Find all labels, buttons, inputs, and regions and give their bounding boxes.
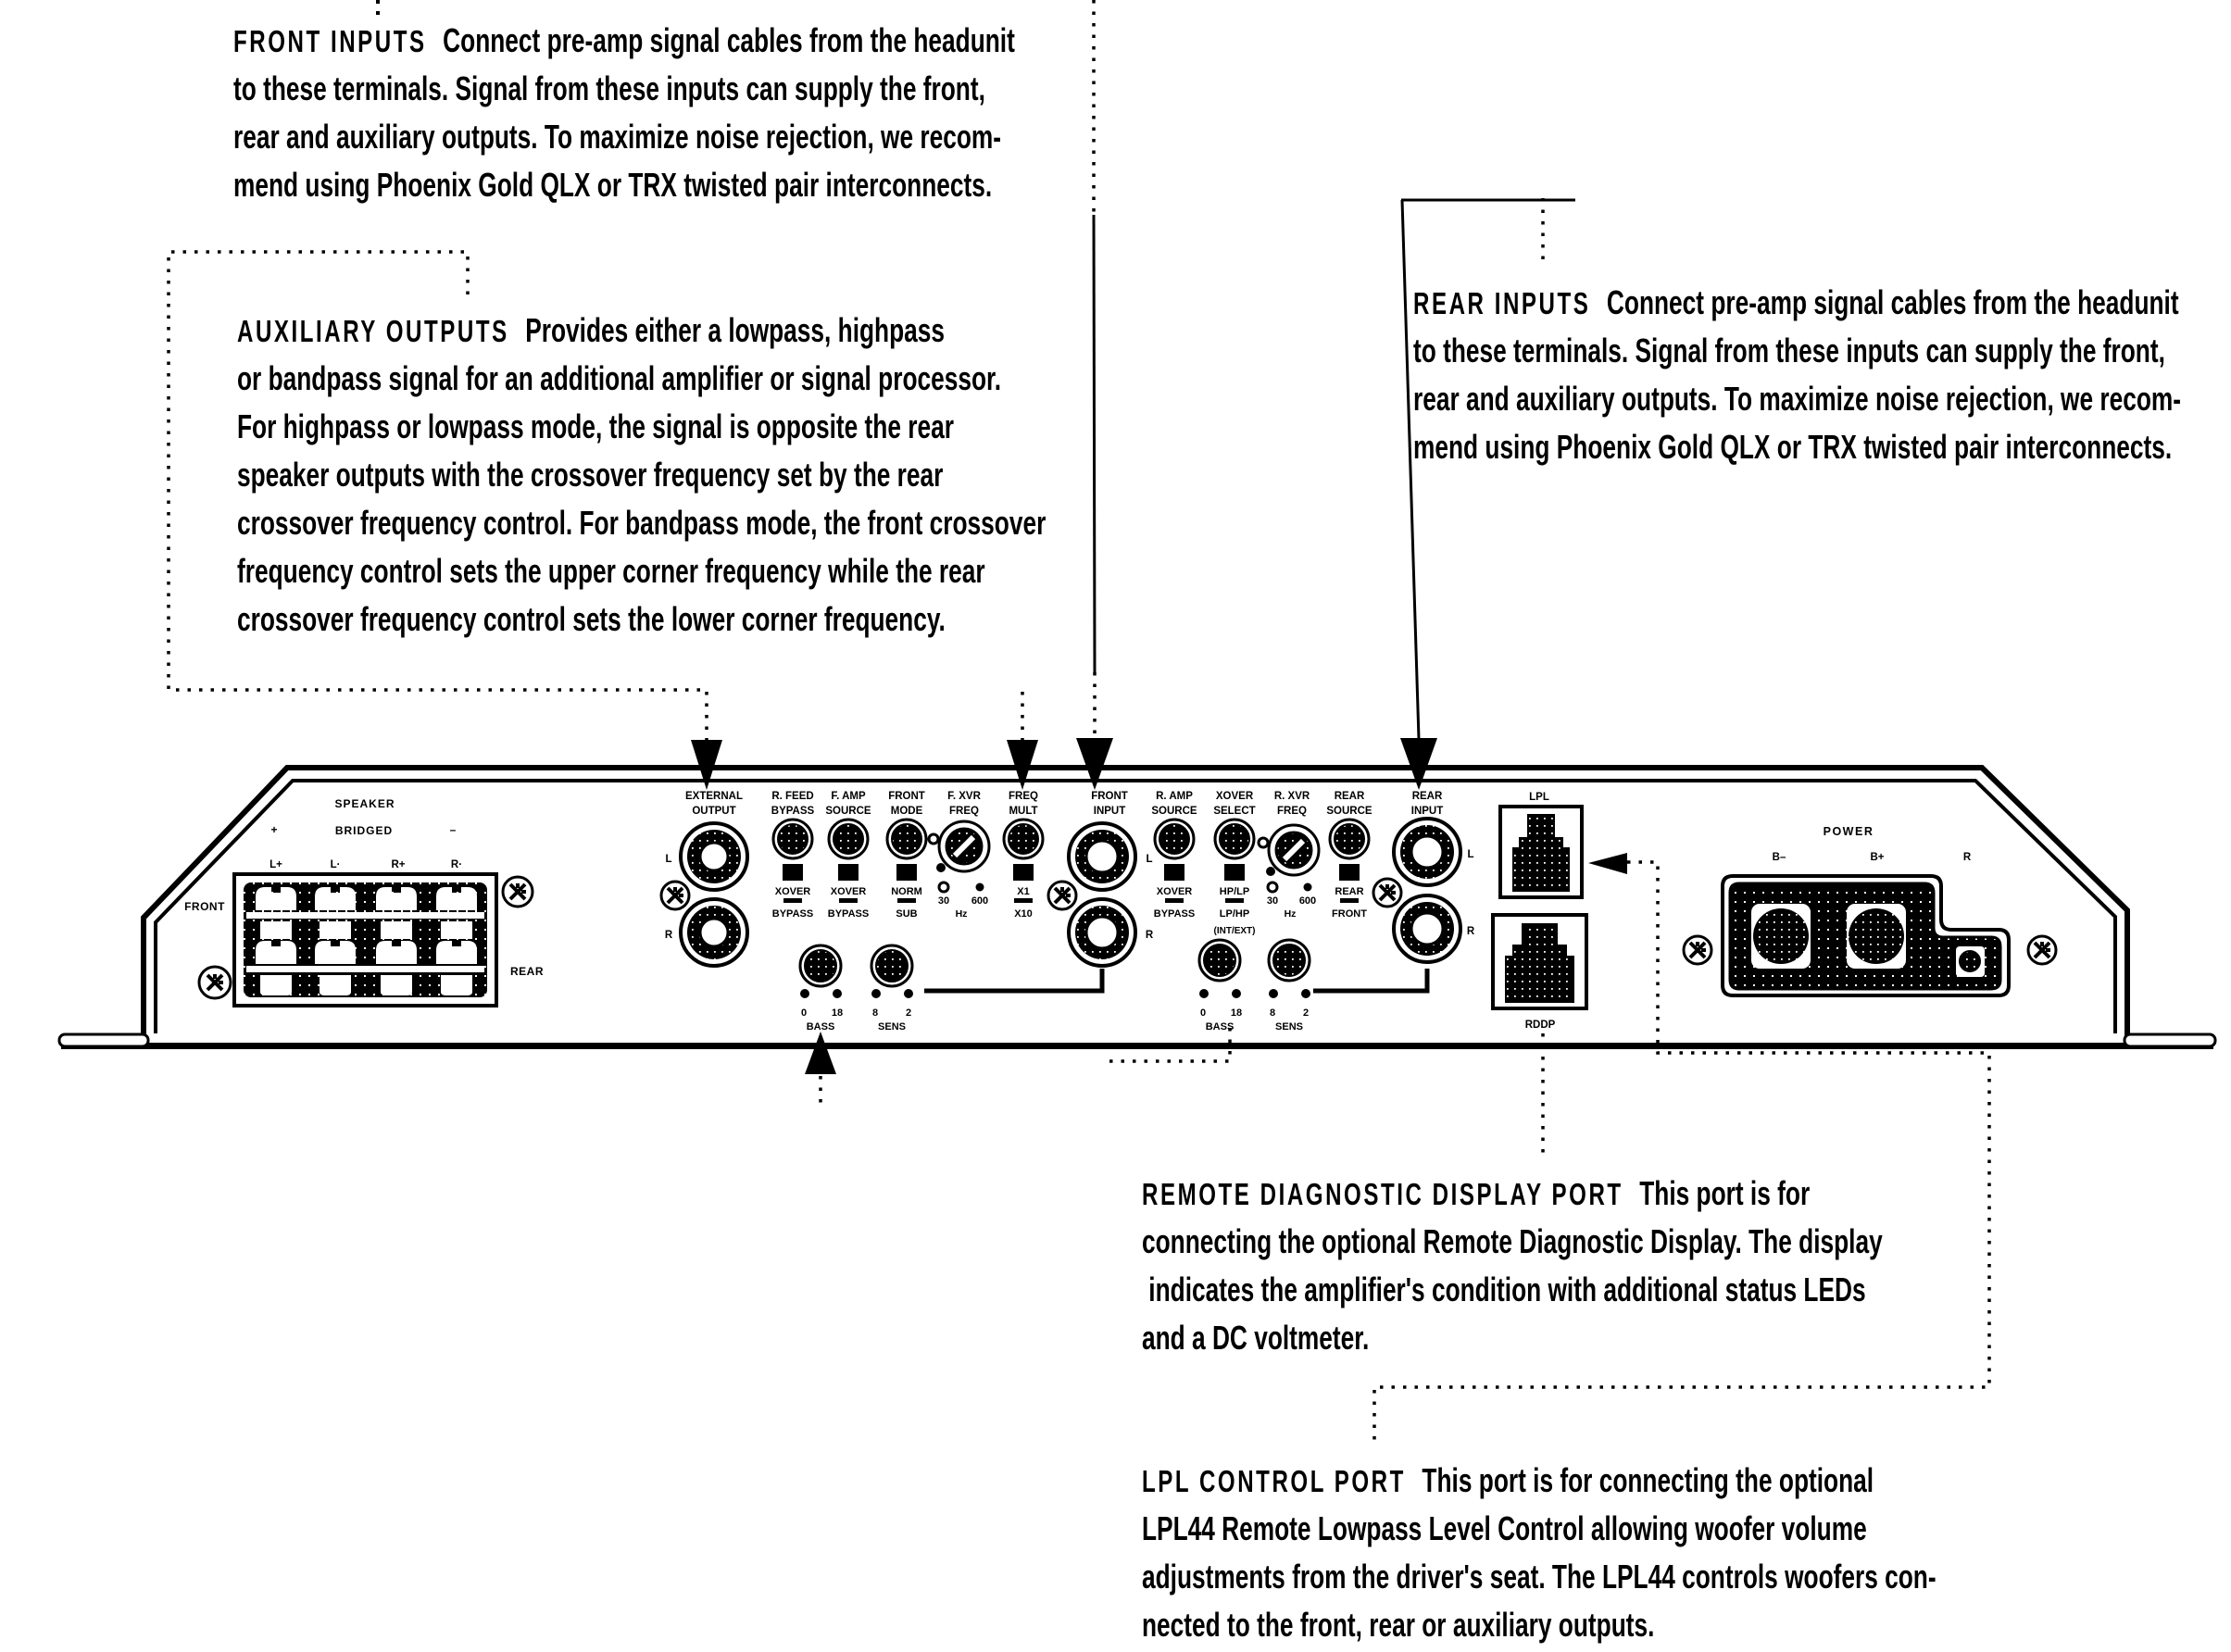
svg-text:POWER: POWER: [1824, 825, 1874, 838]
svg-text:R: R: [1963, 852, 1972, 863]
svg-text:REAR: REAR: [1412, 791, 1443, 802]
svg-text:X10: X10: [1014, 908, 1033, 920]
svg-text:HP/LP: HP/LP: [1220, 886, 1249, 897]
svg-text:FREQ: FREQ: [1009, 791, 1038, 802]
svg-text:BASS: BASS: [1206, 1021, 1235, 1032]
svg-text:L·: L·: [331, 859, 341, 870]
svg-text:XOVER: XOVER: [1216, 791, 1254, 802]
svg-text:FRONT: FRONT: [888, 791, 925, 802]
svg-text:B–: B–: [1773, 852, 1786, 863]
svg-text:R. FEED: R. FEED: [771, 791, 813, 802]
svg-text:600: 600: [1299, 895, 1316, 907]
svg-text:0: 0: [801, 1007, 807, 1019]
svg-text:B+: B+: [1870, 852, 1884, 863]
svg-text:SPEAKER: SPEAKER: [334, 797, 395, 810]
svg-text:8: 8: [872, 1007, 878, 1019]
svg-text:8: 8: [1270, 1007, 1275, 1019]
svg-text:OUTPUT: OUTPUT: [692, 806, 735, 817]
svg-text:SENS: SENS: [878, 1021, 906, 1032]
svg-text:30: 30: [1267, 895, 1278, 907]
svg-text:EXTERNAL: EXTERNAL: [685, 791, 743, 802]
svg-text:REAR: REAR: [1335, 791, 1365, 802]
svg-text:Hz: Hz: [1285, 908, 1297, 920]
svg-text:XOVER: XOVER: [1157, 886, 1193, 897]
svg-text:SOURCE: SOURCE: [1326, 806, 1372, 817]
svg-text:SUB: SUB: [896, 908, 917, 920]
svg-text:MODE: MODE: [891, 806, 923, 817]
svg-text:L: L: [1467, 849, 1473, 860]
svg-text:MULT: MULT: [1009, 806, 1037, 817]
svg-text:R. XVR: R. XVR: [1274, 791, 1310, 802]
svg-text:0: 0: [1200, 1007, 1206, 1019]
svg-text:L+: L+: [269, 859, 282, 870]
svg-text:R+: R+: [391, 859, 405, 870]
svg-text:REAR: REAR: [1335, 886, 1363, 897]
svg-text:X1: X1: [1017, 886, 1029, 897]
svg-text:+: +: [270, 823, 277, 836]
svg-text:R: R: [1146, 930, 1154, 941]
svg-text:FREQ: FREQ: [1277, 806, 1307, 817]
svg-text:FRONT: FRONT: [1332, 908, 1367, 920]
svg-text:18: 18: [832, 1007, 843, 1019]
svg-text:–: –: [450, 823, 457, 836]
svg-text:R: R: [665, 930, 673, 941]
svg-text:XOVER: XOVER: [775, 886, 811, 897]
svg-text:L: L: [1146, 854, 1152, 865]
svg-text:BRIDGED: BRIDGED: [335, 824, 393, 837]
svg-text:SELECT: SELECT: [1213, 806, 1255, 817]
svg-text:30: 30: [938, 895, 949, 907]
svg-text:2: 2: [1303, 1007, 1309, 1019]
svg-text:BYPASS: BYPASS: [828, 908, 869, 920]
svg-text:SOURCE: SOURCE: [1151, 806, 1197, 817]
svg-text:RDDP: RDDP: [1525, 1020, 1556, 1031]
svg-text:LPL: LPL: [1529, 792, 1549, 803]
svg-text:R: R: [1467, 926, 1475, 937]
svg-text:SENS: SENS: [1275, 1021, 1303, 1032]
svg-text:INPUT: INPUT: [1411, 806, 1444, 817]
svg-text:BYPASS: BYPASS: [1154, 908, 1195, 920]
svg-text:R. AMP: R. AMP: [1156, 791, 1193, 802]
svg-text:BASS: BASS: [807, 1021, 835, 1032]
svg-text:BYPASS: BYPASS: [771, 806, 815, 817]
svg-text:FRONT: FRONT: [1091, 791, 1128, 802]
svg-text:L: L: [665, 854, 671, 865]
svg-text:18: 18: [1231, 1007, 1242, 1019]
svg-text:REAR: REAR: [510, 965, 544, 978]
svg-text:F. AMP: F. AMP: [831, 791, 866, 802]
svg-text:LP/HP: LP/HP: [1220, 908, 1249, 920]
svg-text:FRONT: FRONT: [184, 900, 225, 913]
svg-text:FREQ: FREQ: [949, 806, 979, 817]
svg-text:2: 2: [906, 1007, 911, 1019]
svg-text:XOVER: XOVER: [831, 886, 867, 897]
svg-text:Hz: Hz: [956, 908, 968, 920]
svg-text:F. XVR: F. XVR: [947, 791, 981, 802]
svg-text:NORM: NORM: [891, 886, 922, 897]
svg-text:600: 600: [971, 895, 988, 907]
svg-text:(INT/EXT): (INT/EXT): [1214, 926, 1256, 936]
svg-text:BYPASS: BYPASS: [772, 908, 813, 920]
svg-text:R·: R·: [451, 859, 462, 870]
svg-text:SOURCE: SOURCE: [825, 806, 871, 817]
svg-text:INPUT: INPUT: [1094, 806, 1126, 817]
